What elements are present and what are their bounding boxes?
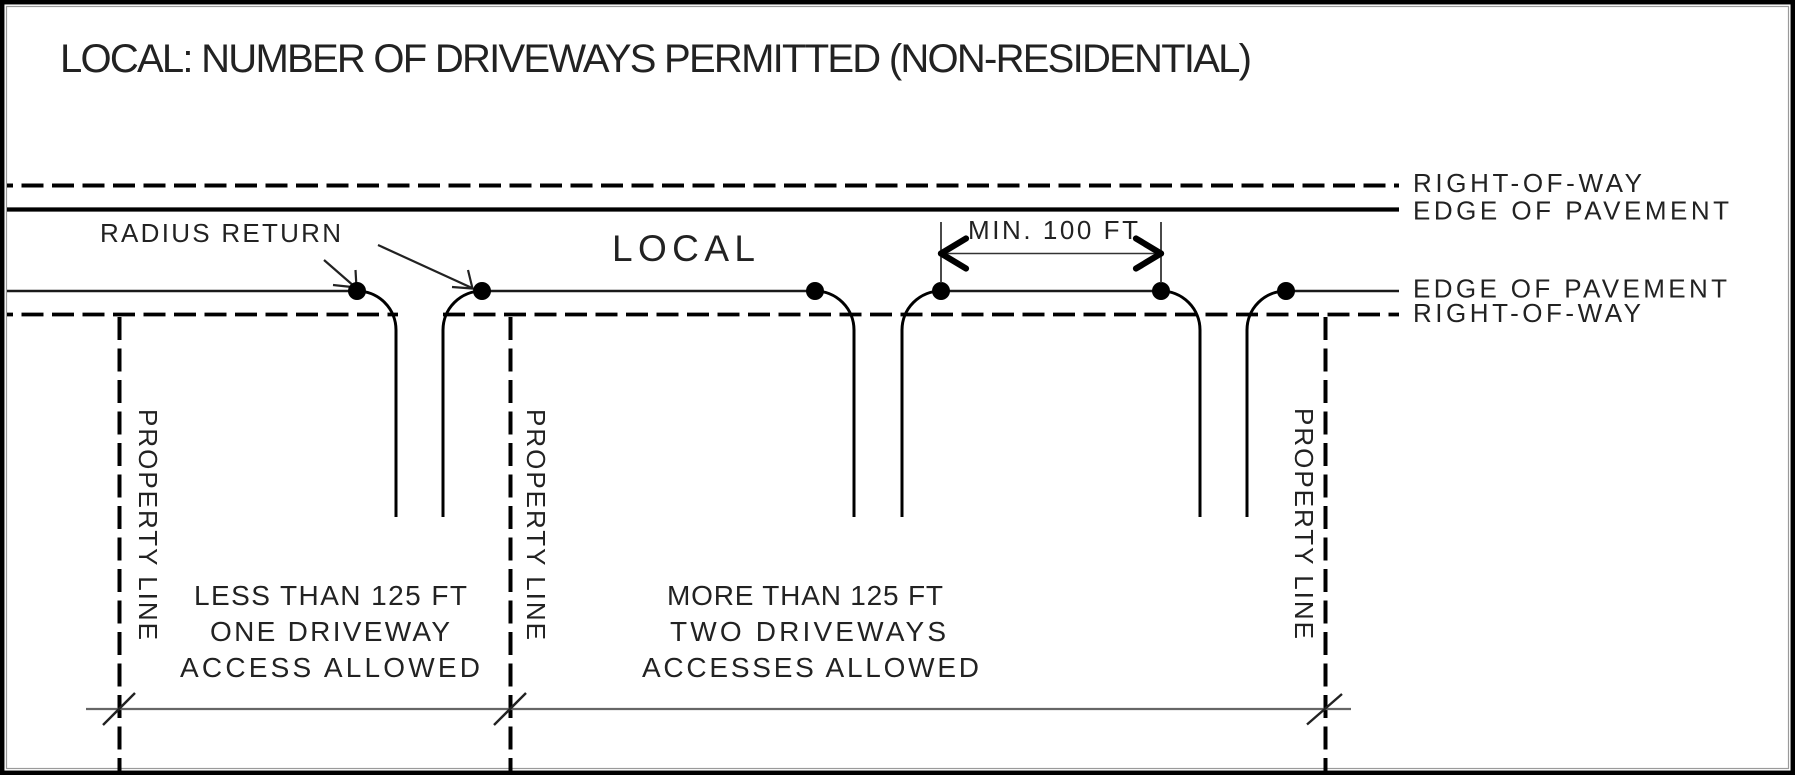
svg-text:PROPERTY LINE: PROPERTY LINE: [1289, 408, 1319, 639]
svg-text:PROPERTY LINE: PROPERTY LINE: [133, 409, 163, 640]
svg-text:LOCAL: NUMBER OF DRIVEWAYS PER: LOCAL: NUMBER OF DRIVEWAYS PERMITTED (NO…: [60, 37, 1252, 81]
svg-text:PROPERTY LINE: PROPERTY LINE: [521, 409, 551, 640]
svg-text:RIGHT-OF-WAY: RIGHT-OF-WAY: [1413, 298, 1641, 328]
svg-text:RADIUS RETURN: RADIUS RETURN: [100, 218, 341, 248]
svg-text:TWO DRIVEWAYS: TWO DRIVEWAYS: [670, 616, 946, 647]
svg-text:ONE DRIVEWAY: ONE DRIVEWAY: [210, 616, 450, 647]
svg-text:MORE THAN 125 FT: MORE THAN 125 FT: [667, 580, 943, 611]
svg-text:RIGHT-OF-WAY: RIGHT-OF-WAY: [1413, 168, 1642, 198]
svg-text:MIN. 100 FT: MIN. 100 FT: [968, 215, 1138, 245]
svg-text:EDGE OF PAVEMENT: EDGE OF PAVEMENT: [1413, 196, 1729, 226]
svg-text:ACCESSES ALLOWED: ACCESSES ALLOWED: [642, 652, 979, 683]
svg-text:LESS THAN 125 FT: LESS THAN 125 FT: [194, 580, 467, 611]
